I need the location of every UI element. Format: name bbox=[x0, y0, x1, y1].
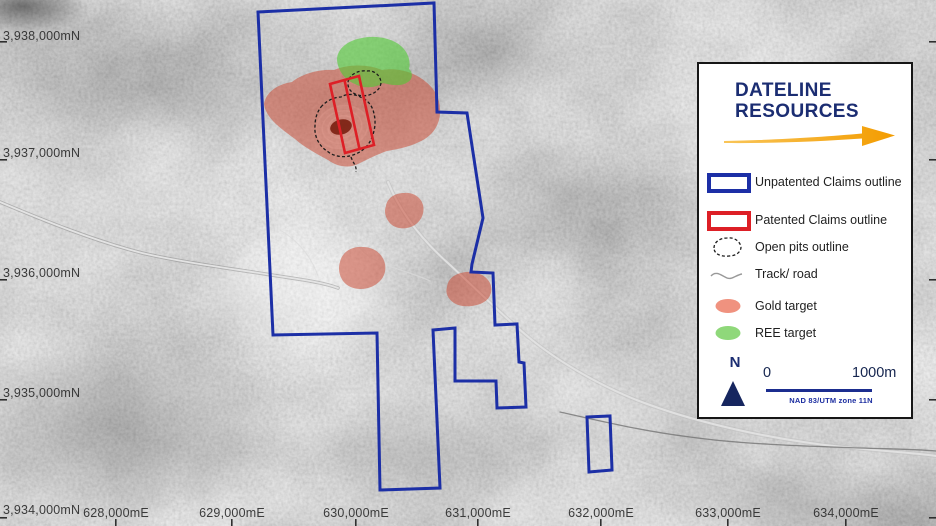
easting-label-634000: 634,000mE bbox=[813, 506, 879, 520]
legend-open-pit-icon bbox=[714, 238, 741, 256]
scale-start-label: 0 bbox=[763, 365, 771, 381]
legend-item-gold-target: Gold target bbox=[755, 299, 817, 313]
north-label: N bbox=[727, 354, 743, 371]
easting-label-631000: 631,000mE bbox=[445, 506, 511, 520]
northing-label-3934000: 3,934,000mN bbox=[3, 503, 80, 517]
northing-label-3937000: 3,937,000mN bbox=[3, 146, 80, 160]
legend-panel: DATELINE RESOURCES bbox=[697, 62, 913, 419]
legend-patented-swatch-icon bbox=[709, 213, 749, 229]
legend-gold-target-icon bbox=[716, 299, 741, 313]
easting-label-628000: 628,000mE bbox=[83, 506, 149, 520]
legend-item-unpatented-claims: Unpatented Claims outline bbox=[755, 175, 902, 189]
easting-label-633000: 633,000mE bbox=[695, 506, 761, 520]
gold-target-blob-4 bbox=[446, 272, 491, 306]
legend-item-ree-target: REE target bbox=[755, 326, 816, 340]
legend-track-road-icon bbox=[711, 273, 742, 278]
mineral-claims-map: 3,938,000mN 3,937,000mN 3,936,000mN 3,93… bbox=[0, 0, 936, 526]
legend-unpatented-swatch-icon bbox=[709, 175, 749, 191]
scale-bar-line bbox=[766, 389, 872, 392]
northing-label-3938000: 3,938,000mN bbox=[3, 29, 80, 43]
logo-arrow-icon bbox=[724, 126, 895, 146]
scale-datum-label: NAD 83/UTM zone 11N bbox=[761, 396, 901, 405]
easting-label-630000: 630,000mE bbox=[323, 506, 389, 520]
scale-end-label: 1000m bbox=[852, 365, 896, 381]
north-arrow-icon bbox=[721, 381, 745, 406]
legend-item-track-road: Track/ road bbox=[755, 267, 818, 281]
legend-ree-target-icon bbox=[716, 326, 741, 340]
easting-label-629000: 629,000mE bbox=[199, 506, 265, 520]
legend-item-open-pits: Open pits outline bbox=[755, 240, 849, 254]
northing-label-3936000: 3,936,000mN bbox=[3, 266, 80, 280]
northing-label-3935000: 3,935,000mN bbox=[3, 386, 80, 400]
legend-item-patented-claims: Patented Claims outline bbox=[755, 213, 887, 227]
easting-label-632000: 632,000mE bbox=[568, 506, 634, 520]
